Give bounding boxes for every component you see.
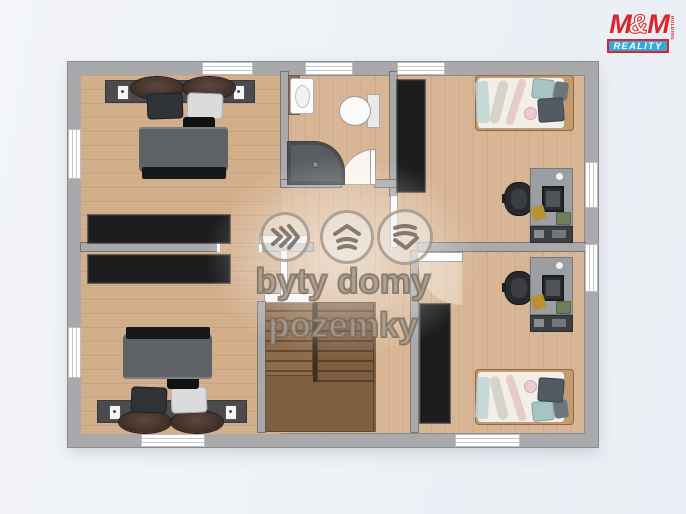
logo-m2: M bbox=[647, 9, 667, 39]
window-bottom-1 bbox=[142, 435, 204, 446]
desk-top-right bbox=[530, 168, 573, 243]
bed-bench bbox=[126, 327, 210, 339]
mug-icon bbox=[556, 173, 563, 180]
floorplan: byty domy pozemky bbox=[68, 62, 598, 447]
window-top-2 bbox=[306, 63, 352, 74]
plant bbox=[556, 301, 571, 314]
logo-mm-text: M&M bbox=[607, 9, 669, 39]
pillow-light bbox=[171, 386, 208, 413]
shelf-item bbox=[552, 319, 566, 327]
watermark-circle bbox=[260, 212, 310, 262]
office-chair-bottom-right bbox=[505, 272, 533, 304]
window-left-1 bbox=[69, 130, 80, 178]
pillow-teal bbox=[531, 78, 555, 100]
blanket-mint bbox=[475, 81, 490, 124]
pillow-light bbox=[187, 92, 224, 119]
desk-bottom-right bbox=[530, 257, 573, 332]
watermark-text: byty domy pozemky bbox=[178, 260, 508, 304]
logo-reality-band: REALITY bbox=[607, 39, 669, 53]
shelf-item bbox=[534, 319, 544, 327]
pillow-gray bbox=[537, 97, 565, 123]
wall-left-divider bbox=[81, 243, 217, 251]
single-bed-top-right bbox=[476, 76, 573, 130]
cushion-pink bbox=[524, 107, 537, 120]
logo-m1: M bbox=[609, 9, 629, 39]
cushion-pink bbox=[524, 380, 537, 393]
house-roof-icon bbox=[332, 222, 362, 252]
floorplan-screenshot: byty domy pozemky M&M HOLDING REALITY bbox=[0, 0, 686, 514]
laptop-icon bbox=[542, 275, 564, 301]
logo-ampersand: & bbox=[629, 9, 648, 39]
stair-landing bbox=[265, 374, 374, 432]
plant bbox=[556, 212, 571, 225]
pillow-gray bbox=[537, 377, 565, 403]
waves-right-icon bbox=[270, 222, 300, 252]
window-top-3 bbox=[398, 63, 444, 74]
watermark-circle bbox=[377, 209, 433, 265]
laptop-icon bbox=[542, 186, 564, 212]
sconce-icon bbox=[117, 85, 129, 100]
window-top-1 bbox=[203, 63, 252, 74]
blanket-mint bbox=[475, 377, 490, 420]
double-bed-bottom-left bbox=[123, 327, 212, 423]
sconce-icon bbox=[225, 405, 237, 420]
window-right-2 bbox=[586, 245, 597, 291]
office-chair-top-right bbox=[505, 183, 533, 215]
shelf-item bbox=[534, 230, 544, 238]
toilet-bowl bbox=[339, 96, 371, 126]
window-left-2 bbox=[69, 328, 80, 377]
terrain-layers-icon bbox=[390, 222, 420, 252]
pillow-dark bbox=[147, 92, 184, 119]
window-right-1 bbox=[586, 163, 597, 207]
window-bottom-2 bbox=[456, 435, 519, 446]
shelf-item bbox=[552, 230, 566, 238]
logo-holding-text: HOLDING bbox=[670, 16, 675, 40]
mm-reality-logo: M&M HOLDING REALITY bbox=[607, 13, 669, 54]
watermark-circle bbox=[320, 210, 374, 264]
pillow-teal bbox=[531, 400, 555, 422]
mug-icon bbox=[556, 262, 563, 269]
pillow-dark bbox=[131, 386, 168, 413]
bathroom-sink bbox=[290, 78, 314, 114]
sink-bowl bbox=[295, 85, 310, 108]
single-bed-bottom-right bbox=[476, 370, 573, 424]
